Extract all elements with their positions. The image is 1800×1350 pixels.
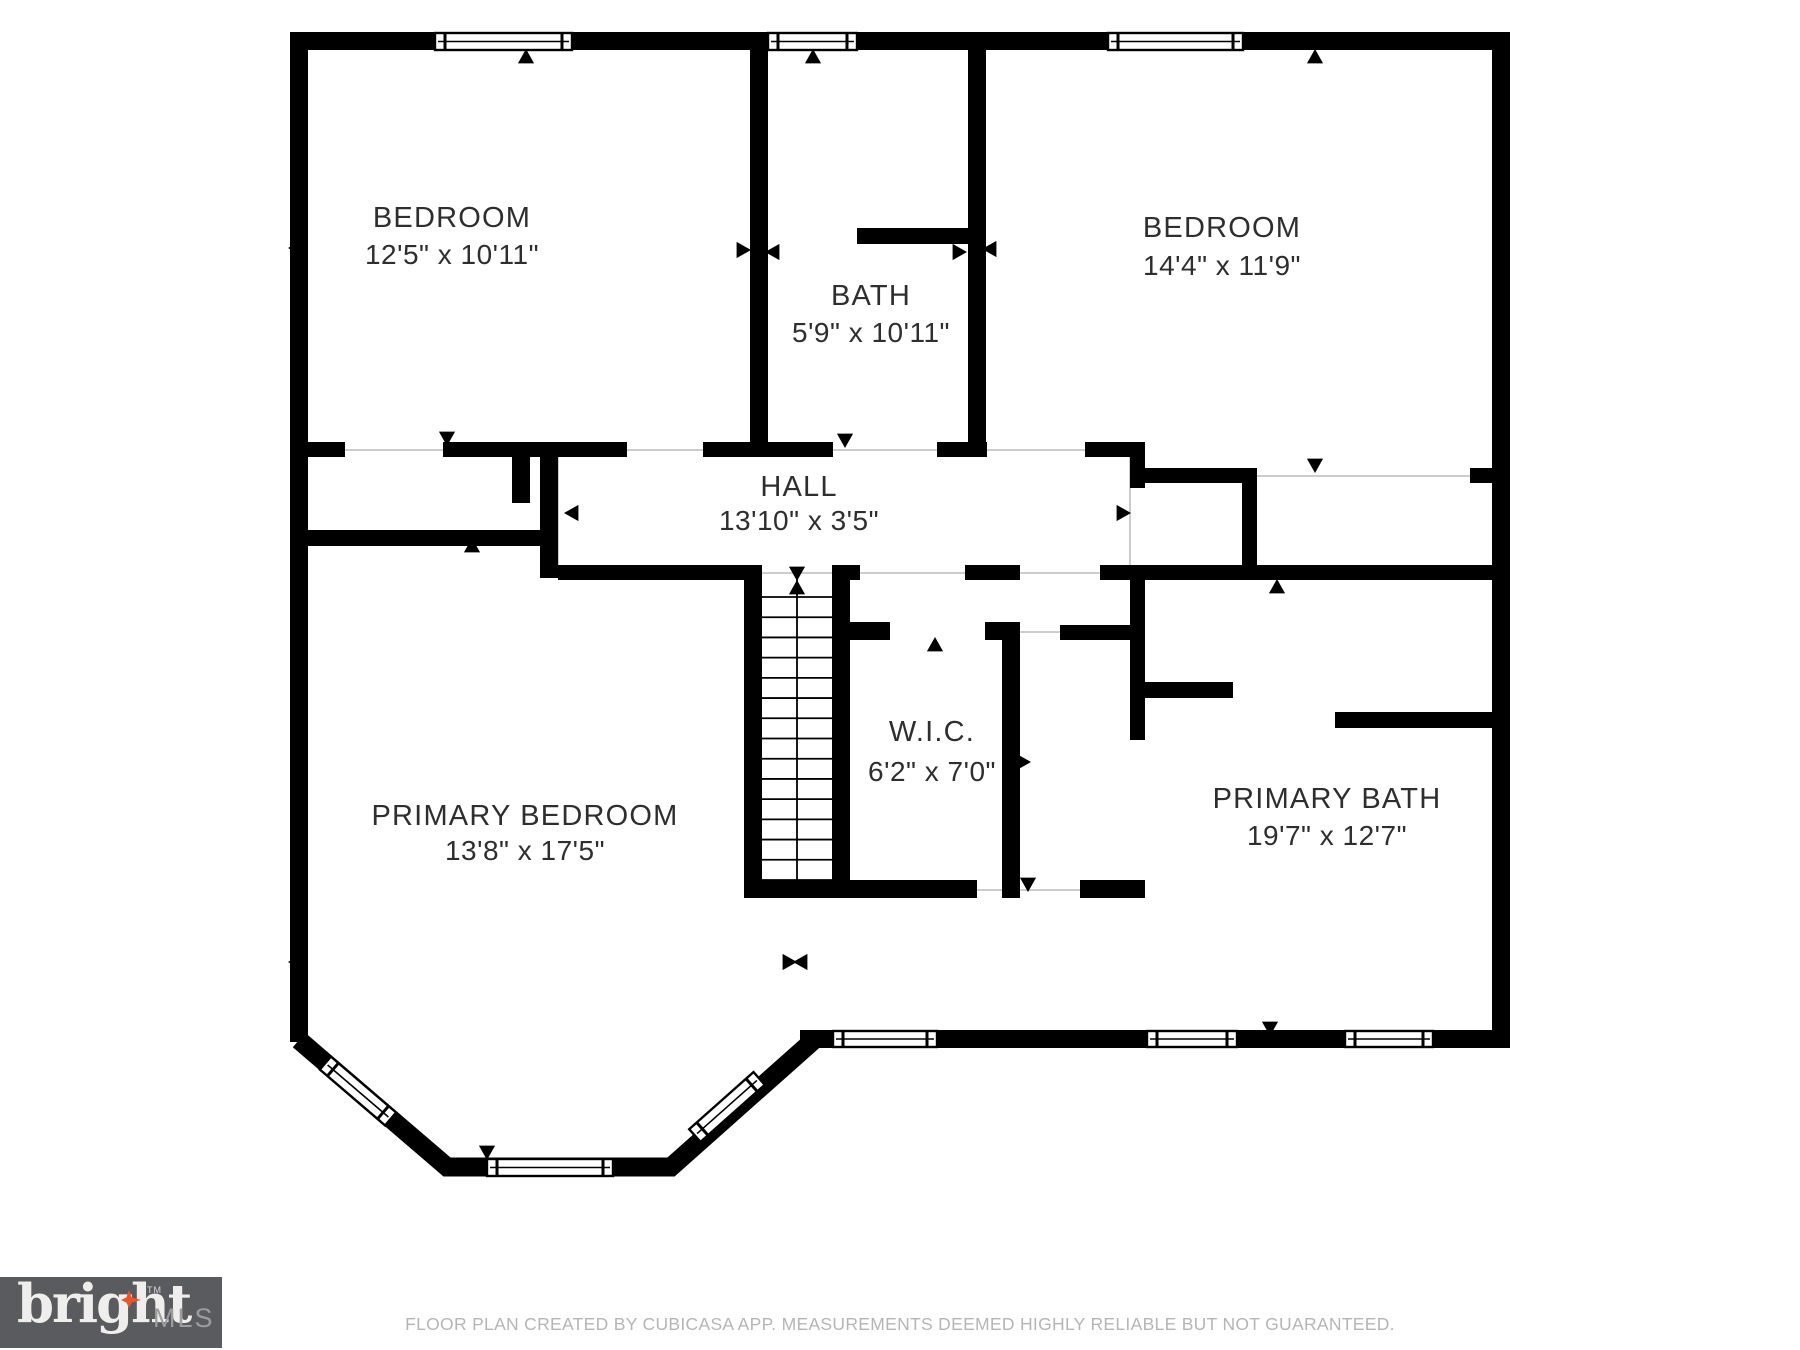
wall bbox=[965, 565, 1020, 580]
wall bbox=[1145, 682, 1233, 698]
staircase bbox=[762, 575, 832, 880]
wall bbox=[937, 442, 987, 457]
wall bbox=[1080, 880, 1145, 898]
room-label-bedroom-2: BEDROOM14'4" x 11'9" bbox=[1143, 212, 1301, 281]
room-label-walk-in-closet: W.I.C.6'2" x 7'0" bbox=[868, 716, 996, 787]
wall bbox=[850, 622, 890, 640]
room-dimensions: 13'10" x 3'5" bbox=[719, 505, 879, 536]
room-name: BATH bbox=[831, 280, 911, 312]
wall bbox=[857, 228, 968, 244]
wall bbox=[1492, 32, 1510, 1048]
room-label-bedroom-1: BEDROOM12'5" x 10'11" bbox=[365, 202, 539, 270]
wall bbox=[832, 565, 860, 580]
door-marker-icon bbox=[1307, 459, 1323, 473]
window bbox=[768, 33, 857, 50]
brand-logo: bright TM MLS bbox=[0, 1277, 222, 1348]
wall bbox=[307, 442, 345, 457]
wall bbox=[307, 530, 543, 546]
window bbox=[435, 33, 572, 50]
room-name: W.I.C. bbox=[889, 716, 975, 748]
wall bbox=[832, 580, 850, 898]
wall bbox=[540, 442, 558, 578]
bay-window bbox=[689, 1072, 765, 1142]
wall bbox=[703, 442, 833, 457]
window bbox=[833, 1031, 937, 1047]
wall bbox=[1130, 442, 1145, 488]
window bbox=[1147, 1031, 1237, 1047]
room-dimensions: 13'8" x 17'5" bbox=[445, 835, 605, 866]
wall bbox=[1335, 712, 1492, 728]
door-marker-icon bbox=[1269, 579, 1285, 593]
room-dimensions: 12'5" x 10'11" bbox=[365, 239, 539, 270]
floor-plan-drawing: BEDROOM12'5" x 10'11"BATH5'9" x 10'11"BE… bbox=[0, 0, 1800, 1350]
room-dimensions: 14'4" x 11'9" bbox=[1143, 250, 1301, 281]
wall bbox=[443, 442, 540, 457]
wall bbox=[750, 50, 768, 457]
wall bbox=[1130, 565, 1145, 740]
door-marker-icon bbox=[564, 505, 578, 521]
room-label-hall: HALL13'10" x 3'5" bbox=[719, 471, 879, 536]
room-dimensions: 5'9" x 10'11" bbox=[792, 317, 950, 348]
wall bbox=[1100, 565, 1492, 580]
wall bbox=[744, 880, 977, 898]
wall bbox=[968, 50, 986, 457]
door-marker-icon bbox=[953, 244, 967, 260]
wall bbox=[744, 565, 762, 898]
room-name: PRIMARY BEDROOM bbox=[372, 800, 679, 832]
room-label-primary-bedroom: PRIMARY BEDROOM13'8" x 17'5" bbox=[372, 800, 679, 866]
room-name: HALL bbox=[760, 471, 837, 503]
brand-star-icon bbox=[118, 1289, 144, 1311]
window bbox=[1108, 33, 1243, 50]
wall bbox=[558, 565, 748, 580]
room-name: BEDROOM bbox=[1143, 212, 1301, 244]
floor-plan-page: { "page": { "background": "#ffffff" }, "… bbox=[0, 0, 1800, 1350]
wall bbox=[512, 457, 530, 503]
room-dimensions: 6'2" x 7'0" bbox=[868, 756, 996, 787]
room-name: BEDROOM bbox=[373, 202, 531, 234]
door-marker-icon bbox=[1017, 754, 1031, 770]
wall bbox=[1470, 468, 1492, 483]
door-marker-icon bbox=[789, 580, 805, 594]
door-marker-icon bbox=[793, 954, 807, 970]
window bbox=[487, 1159, 613, 1176]
door-marker-icon bbox=[1117, 505, 1131, 521]
room-name: PRIMARY BATH bbox=[1213, 783, 1442, 815]
wall bbox=[1060, 625, 1130, 640]
trademark-symbol: TM bbox=[147, 1285, 162, 1295]
wall bbox=[290, 32, 308, 1042]
door-marker-icon bbox=[837, 434, 853, 448]
window bbox=[1345, 1031, 1433, 1047]
room-dimensions: 19'7" x 12'7" bbox=[1247, 820, 1407, 851]
door-marker-icon bbox=[737, 242, 751, 258]
door-marker-icon bbox=[927, 637, 943, 651]
wall bbox=[1143, 468, 1257, 483]
bay-window bbox=[320, 1057, 396, 1126]
room-label-bath: BATH5'9" x 10'11" bbox=[792, 280, 950, 348]
door-marker-icon bbox=[1307, 49, 1323, 63]
footer-disclaimer: FLOOR PLAN CREATED BY CUBICASA APP. MEAS… bbox=[0, 1314, 1800, 1335]
wall bbox=[1242, 483, 1257, 567]
room-label-primary-bath: PRIMARY BATH19'7" x 12'7" bbox=[1213, 783, 1442, 851]
